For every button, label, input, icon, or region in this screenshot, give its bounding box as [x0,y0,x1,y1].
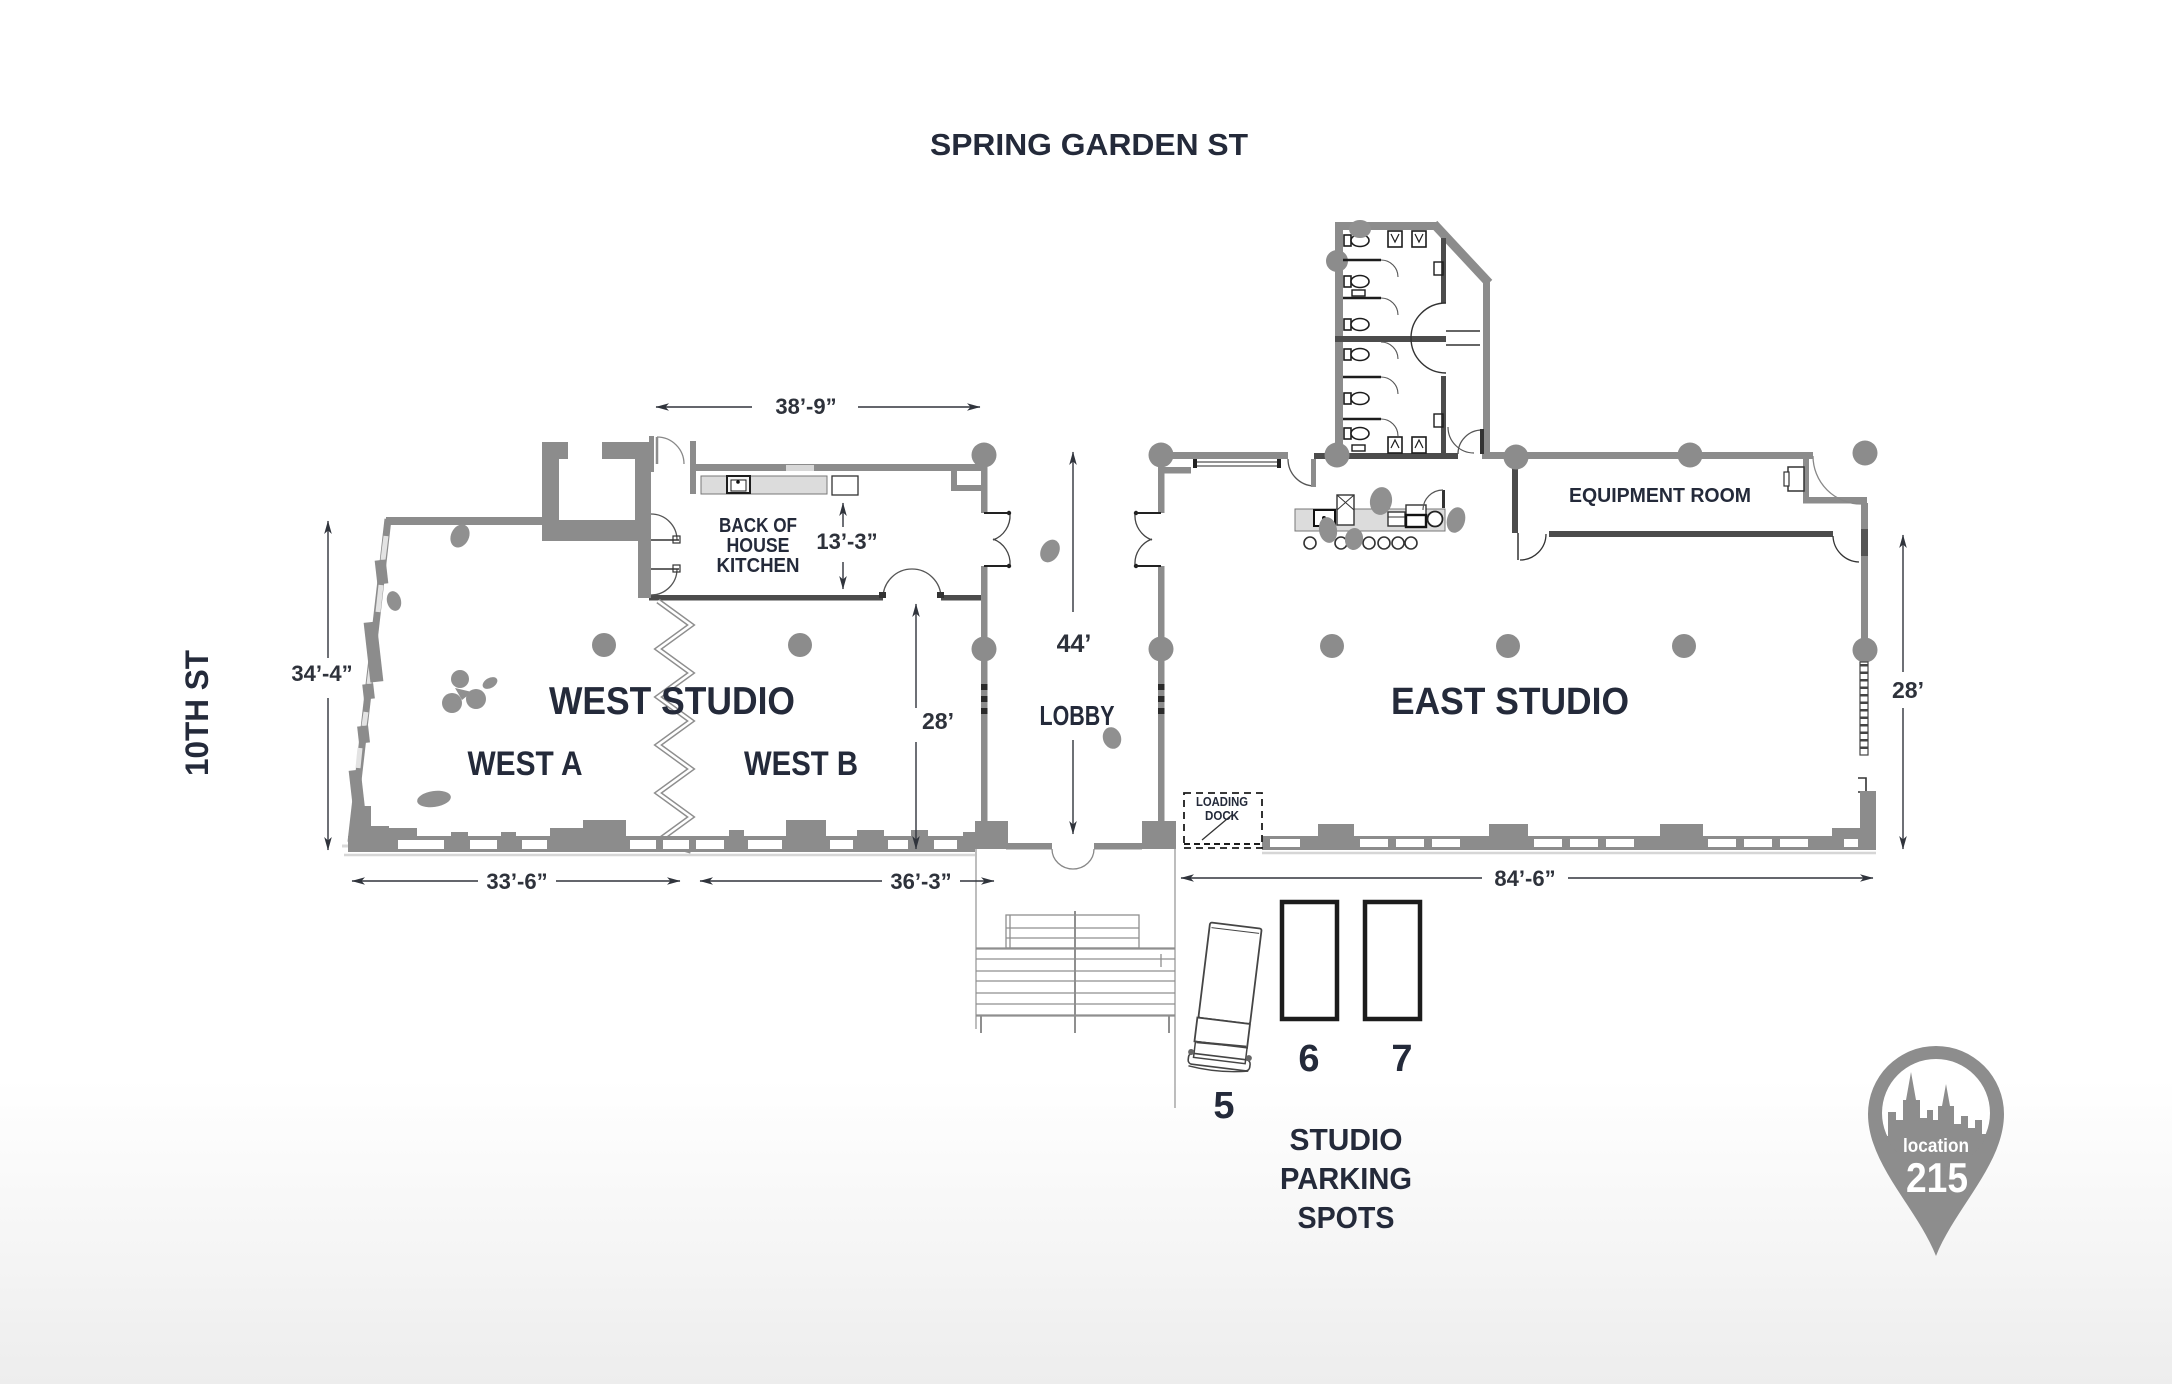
svg-text:WEST A: WEST A [468,745,583,783]
svg-text:SPOTS: SPOTS [1298,1200,1395,1235]
svg-text:BACK OF: BACK OF [719,515,797,537]
svg-text:KITCHEN: KITCHEN [717,555,800,577]
svg-text:PARKING: PARKING [1280,1161,1412,1196]
svg-text:84’-6”: 84’-6” [1494,866,1555,891]
svg-text:13’-3”: 13’-3” [816,529,877,554]
svg-text:SPRING GARDEN ST: SPRING GARDEN ST [930,127,1248,162]
svg-text:34’-4”: 34’-4” [291,661,352,686]
svg-text:6: 6 [1298,1038,1319,1080]
svg-text:215: 215 [1906,1154,1968,1201]
svg-text:WEST B: WEST B [744,745,858,783]
svg-text:10TH ST: 10TH ST [179,650,215,776]
svg-text:36’-3”: 36’-3” [890,869,951,894]
svg-text:38’-9”: 38’-9” [775,394,836,419]
svg-text:WEST STUDIO: WEST STUDIO [549,680,795,723]
svg-text:28’: 28’ [1892,677,1924,703]
svg-text:EAST STUDIO: EAST STUDIO [1391,681,1629,723]
svg-text:EQUIPMENT ROOM: EQUIPMENT ROOM [1569,485,1751,507]
svg-text:HOUSE: HOUSE [727,535,790,557]
svg-text:7: 7 [1391,1038,1412,1080]
svg-text:33’-6”: 33’-6” [486,869,547,894]
svg-text:STUDIO: STUDIO [1290,1122,1403,1157]
svg-text:LOBBY: LOBBY [1040,700,1115,731]
svg-text:DOCK: DOCK [1205,809,1239,823]
svg-text:28’: 28’ [922,708,954,734]
svg-text:5: 5 [1213,1085,1234,1127]
svg-text:LOADING: LOADING [1196,795,1248,809]
svg-text:44’: 44’ [1057,630,1092,658]
